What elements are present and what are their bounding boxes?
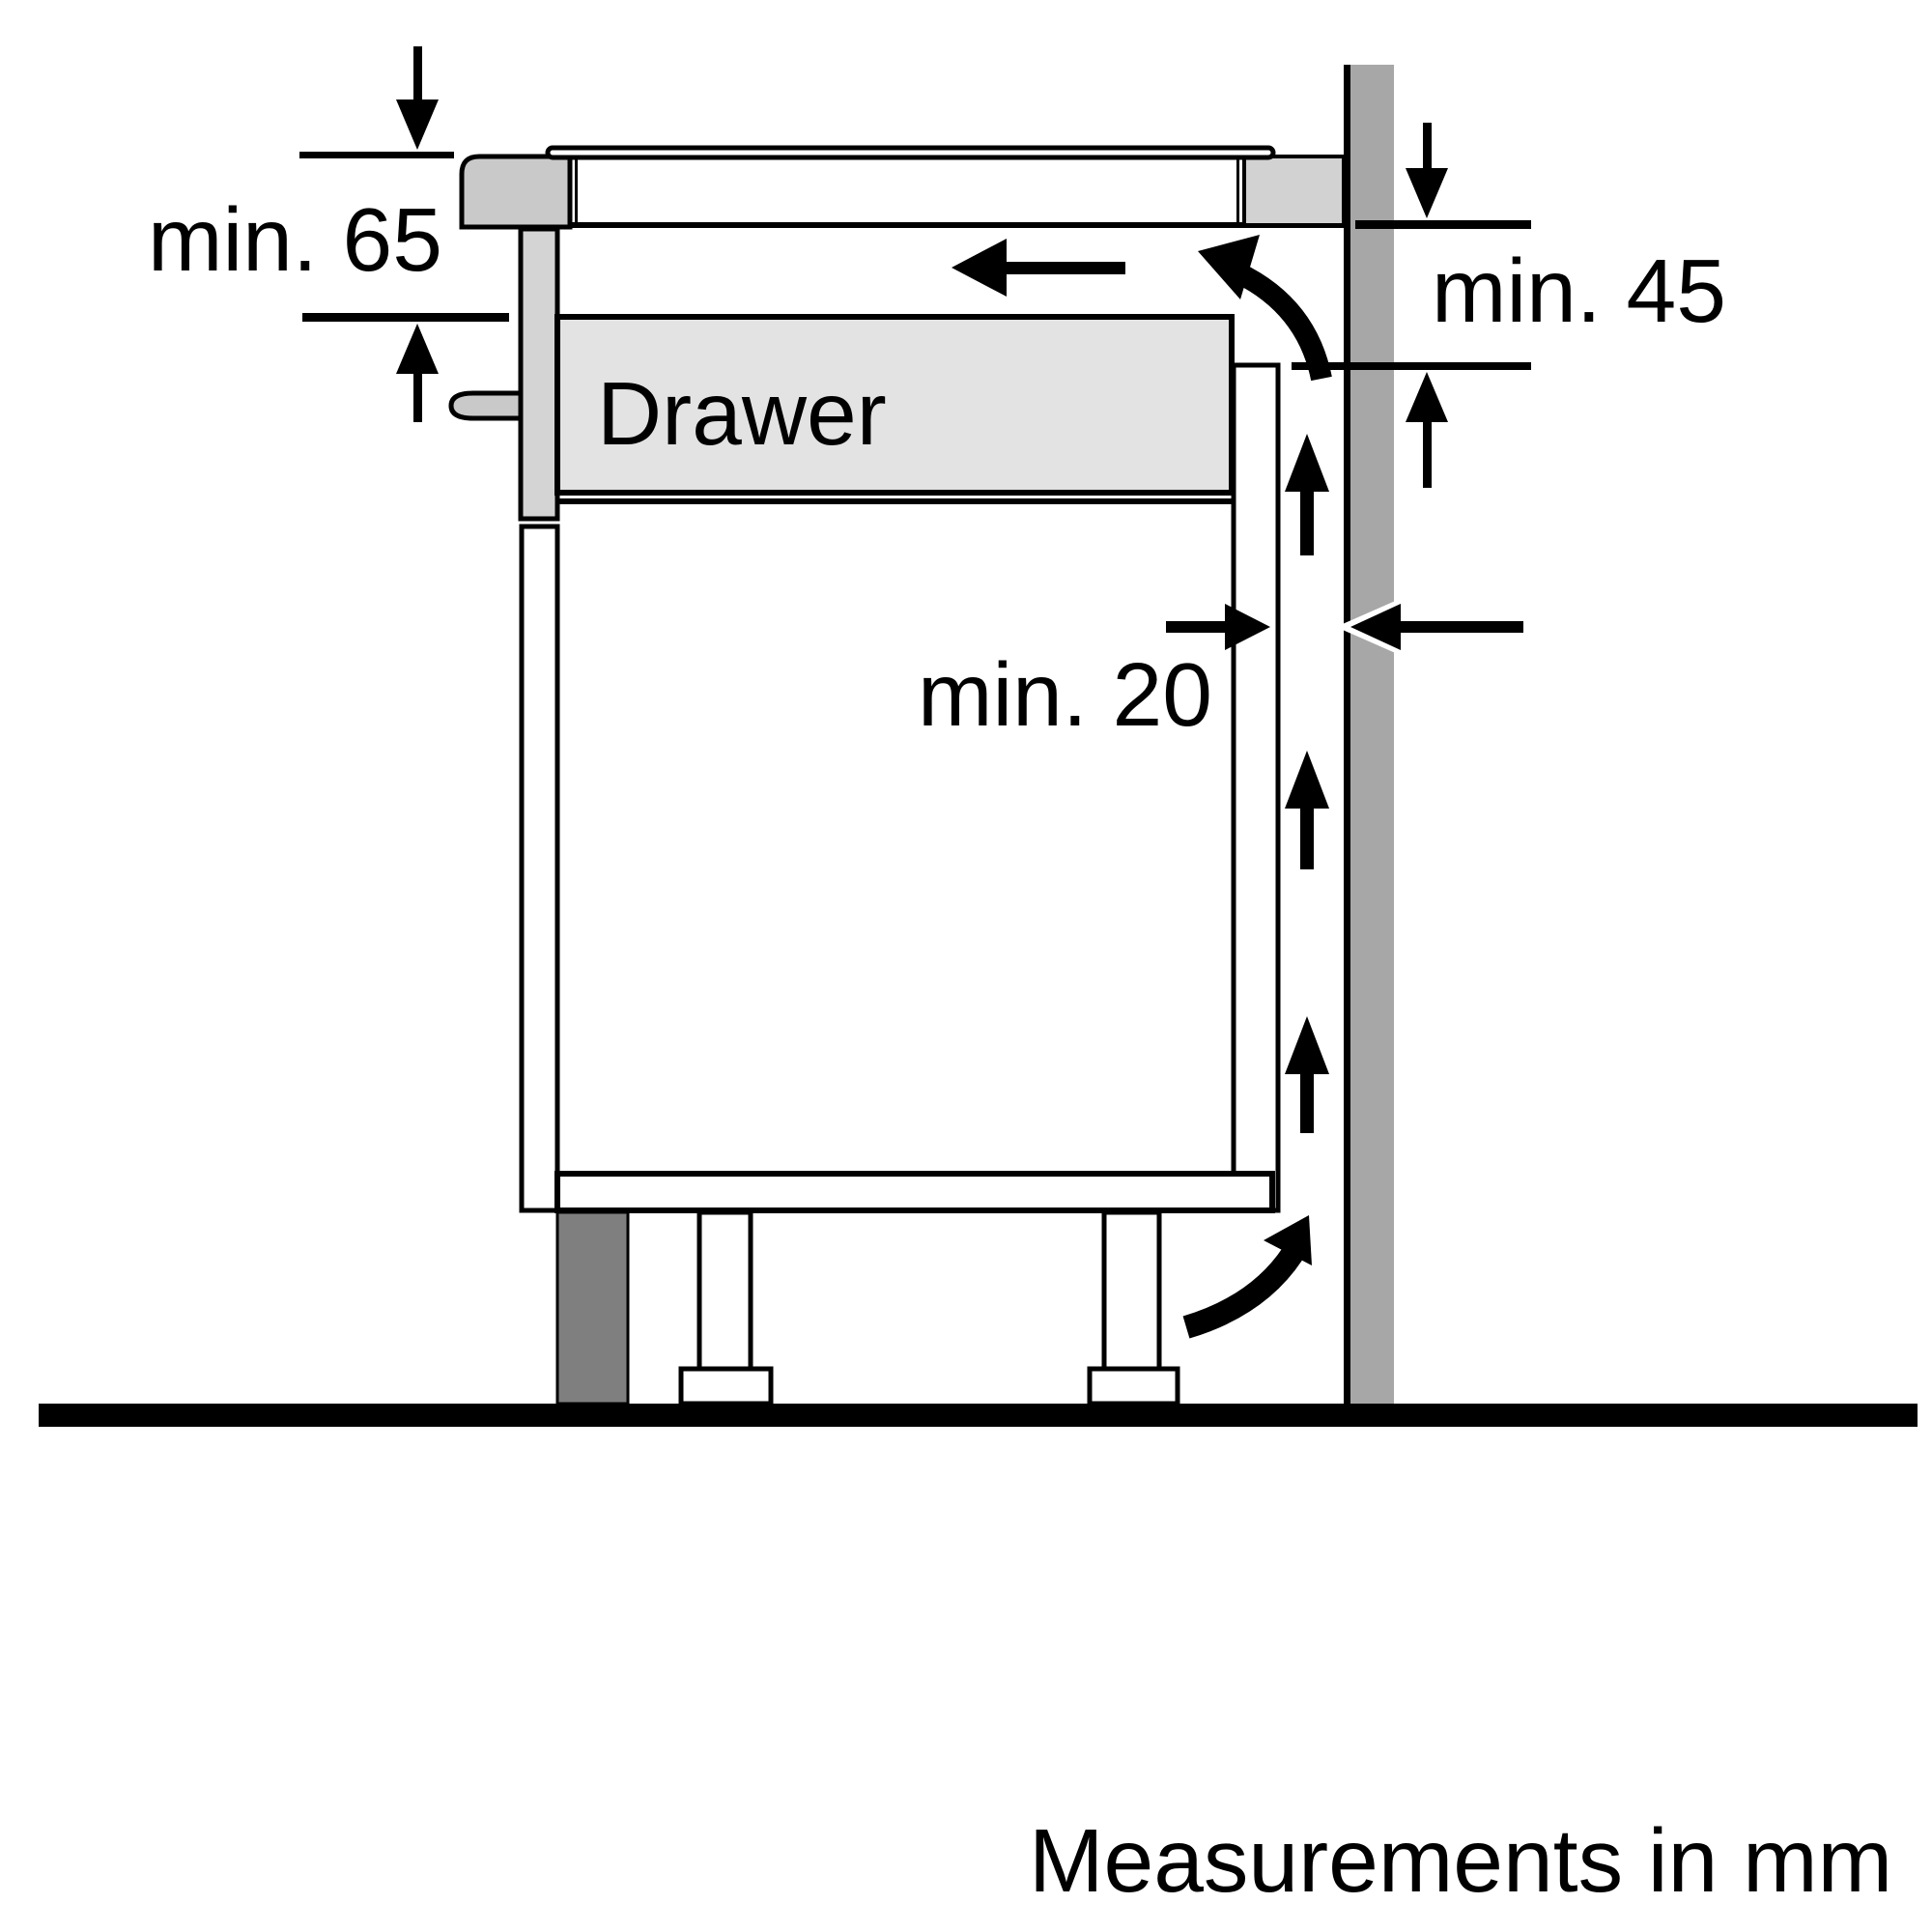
worktop-end-block — [1244, 156, 1344, 225]
arrow-up-shaft — [413, 372, 422, 422]
arrow-down-icon — [396, 99, 439, 150]
tick-upper — [299, 152, 454, 158]
cabinet-bottom-board — [557, 1174, 1272, 1210]
cabinet-leg-left — [681, 1212, 771, 1404]
dimension-label-min-65: min. 65 — [148, 189, 442, 290]
worktop-bottom-edge — [462, 222, 1344, 228]
tick-upper — [1355, 220, 1531, 229]
plinth — [557, 1212, 628, 1404]
units-note: Measurements in mm — [1029, 1810, 1892, 1911]
airflow-exhaust-left — [952, 239, 1125, 297]
arrow-up-icon — [1406, 372, 1448, 422]
wall-body — [1344, 65, 1394, 1404]
hob-edge-line-2 — [575, 156, 578, 227]
leg-stem — [1104, 1212, 1159, 1372]
hob-edge-line-1 — [568, 156, 571, 227]
airflow-left-shaft — [1007, 262, 1125, 274]
hob-glass-top — [548, 148, 1273, 157]
airflow-up-icon — [1285, 434, 1329, 492]
leg-stem — [699, 1212, 751, 1372]
drawer-handle — [451, 393, 521, 418]
cabinet-back-batten — [1234, 365, 1278, 1210]
cabinet-leg-right — [1090, 1212, 1178, 1404]
wall-left-edge — [1344, 65, 1350, 1404]
arrow-right-shaft — [1166, 621, 1230, 633]
leg-foot — [1090, 1369, 1178, 1404]
drawer-front-panel — [521, 229, 557, 519]
drawer-label: Drawer — [597, 363, 887, 464]
arrow-down-shaft — [1423, 123, 1432, 171]
shelf-line — [557, 498, 1241, 504]
airflow-up-icon — [1285, 751, 1329, 809]
curve-stroke — [1186, 1254, 1293, 1327]
arrow-down-icon — [1406, 168, 1448, 218]
arrow-up-shaft — [1423, 422, 1432, 488]
arrow-up-icon — [396, 324, 439, 374]
installation-diagram: Drawer min. 65 min. 45 — [0, 0, 1932, 1932]
dimension-min-20: min. 20 — [918, 599, 1523, 745]
diagram-canvas: Drawer min. 65 min. 45 — [0, 0, 1932, 1932]
wall — [1344, 65, 1394, 1404]
dimension-label-min-45: min. 45 — [1432, 241, 1726, 341]
airflow-up-shaft — [1300, 492, 1314, 555]
airflow-up-icon — [1285, 1016, 1329, 1074]
airflow-up-shaft — [1300, 809, 1314, 869]
tick-lower — [302, 313, 509, 322]
airflow-up-arrows — [1285, 434, 1329, 1133]
hob-body-left — [462, 156, 570, 227]
arrow-left-shaft — [1401, 621, 1523, 633]
airflow-curve-bottom — [1186, 1215, 1312, 1327]
floor-line — [39, 1404, 1918, 1427]
dimension-min-65: min. 65 — [148, 46, 509, 422]
arrow-down-shaft — [413, 46, 422, 106]
leg-foot — [681, 1369, 771, 1404]
dimension-label-min-20: min. 20 — [918, 644, 1212, 745]
cabinet-door-panel — [522, 526, 557, 1210]
worktop-end-line — [1236, 157, 1239, 225]
airflow-left-icon — [952, 239, 1007, 297]
airflow-up-shaft — [1300, 1074, 1314, 1133]
